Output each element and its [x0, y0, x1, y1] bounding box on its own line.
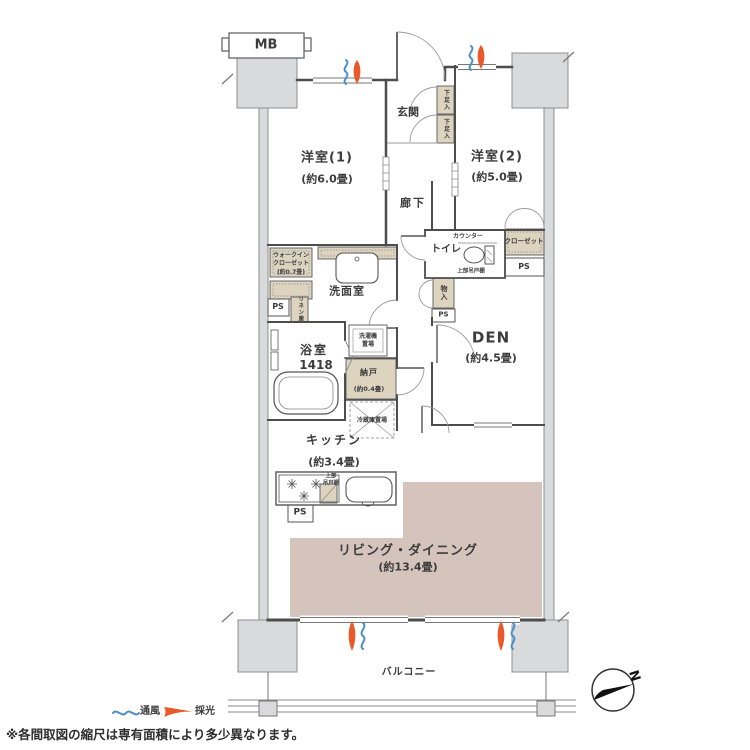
label-ps-storage: PS	[438, 312, 448, 319]
label-linen: リネン庫	[297, 296, 303, 322]
label-washer-2: 置場	[362, 342, 374, 348]
daylight-flame	[349, 621, 356, 651]
toilet-fixture	[458, 243, 497, 264]
footnote: ※各間取図の縮尺は専有面積により多少異なります。	[6, 724, 304, 743]
room-label-washroom: 洗面室	[329, 286, 365, 297]
sliding-doors	[383, 157, 458, 196]
kitchen-sink	[346, 477, 392, 506]
room-area-kitchen: (約3.4畳)	[308, 457, 360, 468]
legend-daylight-arrow	[164, 707, 192, 717]
label-ps-washroom: PS	[272, 303, 284, 311]
label-storage: 物入	[440, 285, 447, 301]
label-washer-1: 洗濯機	[359, 334, 377, 340]
daylight-flame	[498, 621, 505, 651]
label-toilet-counter: カウンター	[453, 234, 483, 240]
room-label-living-dining: リビング・ダイニング	[338, 545, 478, 558]
room-label-entrance: 玄関	[397, 107, 419, 118]
label-shoe-cabinet-lower: 下足入	[443, 119, 449, 140]
room-area-den: (約4.5畳)	[465, 353, 517, 364]
label-walk-in-closet-3: (約0.7畳)	[277, 270, 305, 276]
room-label-toilet: トイレ	[431, 245, 461, 255]
room-size-bathroom: 1418	[299, 359, 332, 371]
room-label-den: DEN	[472, 331, 510, 346]
label-ps-closet: PS	[518, 263, 530, 271]
label-mb: MB	[255, 39, 278, 52]
room-area-storeroom: (約0.4畳)	[354, 386, 384, 393]
label-kitchen-upper-cabinet-1: 上部	[325, 474, 336, 480]
label-walk-in-closet-2: クローゼット	[273, 261, 309, 267]
room-label-western2: 洋室(2)	[471, 151, 523, 164]
legend-daylight-label: 採光	[195, 707, 215, 717]
legend-ventilation-wave	[113, 712, 139, 715]
legend-ventilation-label: 通風	[140, 707, 160, 717]
ventilation-wave	[362, 623, 365, 649]
label-kitchen-upper-cabinet-2: 吊戸棚	[323, 481, 340, 487]
label-closet: クローゼット	[505, 238, 544, 245]
room-area-western1: (約6.0畳)	[301, 174, 353, 185]
room-label-bathroom: 浴室	[300, 344, 328, 356]
room-label-storeroom: 納戸	[360, 369, 378, 377]
stove-burners	[287, 479, 321, 501]
balcony-railing	[228, 672, 576, 716]
room-area-living-dining: (約13.4畳)	[378, 562, 437, 573]
label-ps-kitchen: PS	[293, 509, 306, 518]
washbasin	[336, 253, 378, 283]
label-walk-in-closet-1: ウォークイン	[273, 253, 309, 259]
cabinet-hatching	[273, 232, 541, 296]
label-toilet-upper-cabinet: 上部吊戸棚	[457, 269, 485, 275]
room-label-balcony: バルコニー	[382, 668, 437, 678]
room-label-hallway: 廊下	[400, 198, 426, 209]
label-shoe-cabinet-upper: 下足入	[443, 90, 449, 111]
room-label-western1: 洋室(1)	[301, 152, 353, 165]
floor-plan: MB 洋室(1) (約6.0畳) 玄関 下足入 下足入 洋室(2) (約5.0畳…	[0, 0, 750, 750]
label-fridge: 冷蔵庫置場	[357, 418, 387, 424]
room-area-western2: (約5.0畳)	[471, 172, 523, 183]
room-label-kitchen: キッチン	[306, 434, 362, 446]
